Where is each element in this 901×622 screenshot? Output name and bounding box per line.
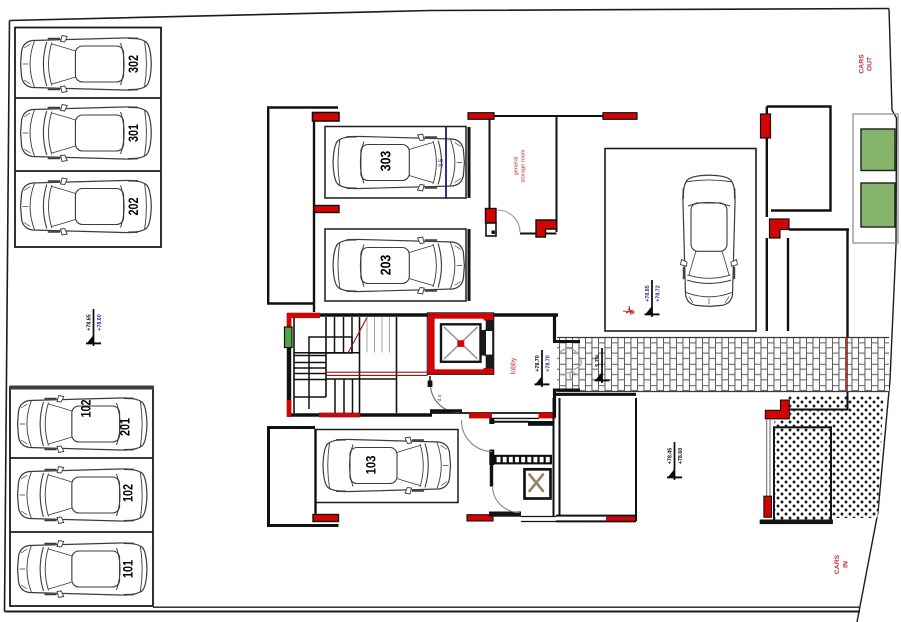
- svg-text:5.7%: 5.7%: [595, 354, 601, 366]
- svg-text:203: 203: [377, 255, 393, 276]
- svg-text:lobby: lobby: [510, 357, 517, 374]
- svg-text:103: 103: [364, 456, 379, 475]
- svg-text:general: general: [514, 157, 520, 176]
- svg-text:IN: IN: [843, 561, 850, 568]
- svg-text:+78.60: +78.60: [97, 314, 103, 330]
- svg-text:d.s: d.s: [437, 394, 443, 402]
- svg-text:+78.70: +78.70: [545, 355, 551, 371]
- svg-text:201: 201: [117, 418, 132, 436]
- svg-text:3.5: 3.5: [439, 158, 445, 167]
- svg-text:storage room: storage room: [521, 149, 527, 182]
- svg-text:OUT: OUT: [867, 56, 874, 71]
- svg-text:CARS: CARS: [834, 554, 841, 574]
- svg-text:202: 202: [126, 197, 141, 215]
- svg-text:+78.72: +78.72: [655, 285, 661, 301]
- svg-text:102: 102: [120, 484, 135, 502]
- svg-text:101: 101: [120, 560, 135, 578]
- svg-text:303: 303: [377, 151, 393, 172]
- svg-text:+78.45: +78.45: [667, 448, 673, 464]
- svg-text:+78.65: +78.65: [86, 314, 92, 330]
- svg-text:+78.60: +78.60: [678, 448, 684, 464]
- svg-text:301: 301: [126, 124, 141, 142]
- svg-text:+78.70: +78.70: [535, 355, 541, 371]
- svg-text:302: 302: [126, 55, 141, 73]
- svg-text:102: 102: [78, 399, 93, 417]
- svg-text:+78.85: +78.85: [645, 285, 651, 301]
- svg-text:CARS: CARS: [859, 54, 866, 74]
